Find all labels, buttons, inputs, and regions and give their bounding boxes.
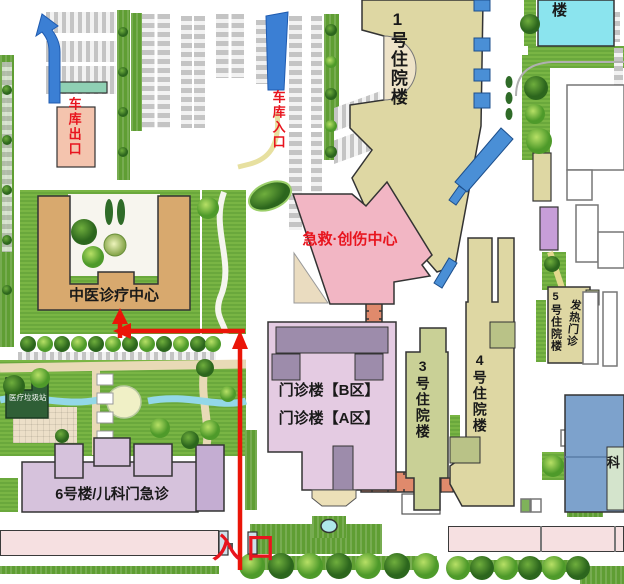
route-overlay bbox=[0, 0, 624, 584]
route-arrowhead-entry bbox=[112, 308, 128, 324]
hospital-map: 1号住院楼 急救·创伤中心 中医诊疗中心 门诊楼【B区】 门诊楼【A区】 3号住… bbox=[0, 0, 624, 584]
label-main-entrance: 入口 bbox=[212, 534, 280, 564]
